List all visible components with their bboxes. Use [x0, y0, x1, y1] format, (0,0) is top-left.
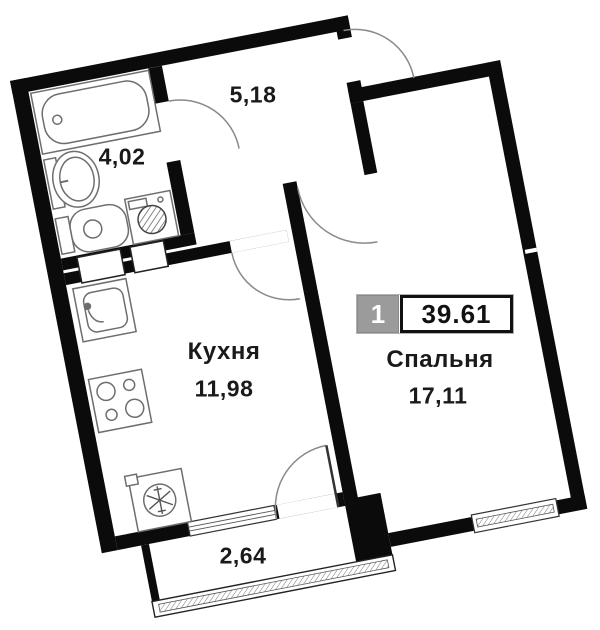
wall-bedroom-top [348, 60, 503, 103]
hallway-area-label: 5,18 [230, 82, 277, 109]
hob-icon [88, 369, 151, 432]
bedroom-window [471, 499, 559, 533]
floor-plan-page: 5,18 4,02 Кухня 11,98 Спальня 17,11 2,64… [0, 0, 600, 630]
kitchen-window [187, 505, 276, 536]
kitchen-area-label: 11,98 [195, 376, 254, 403]
washing-machine-icon [125, 191, 179, 245]
bedroom-name-label: Спальня [386, 346, 493, 374]
wall-bedroom-bottom-corner [556, 495, 587, 514]
windows [100, 248, 592, 618]
wall-partition-kitchen-bedroom [283, 181, 359, 506]
door-swings [162, 19, 492, 524]
entrance-door-arc [344, 19, 414, 89]
bathroom-area-label: 4,02 [99, 144, 146, 171]
wall-entrance-cap-top [334, 15, 352, 39]
bedroom-door-arc [298, 175, 378, 255]
wall-bedroom-door-stub [351, 101, 378, 175]
bathroom-door-arc [169, 90, 239, 160]
duct-shaft-2 [130, 241, 168, 273]
wall-bedroom-right [486, 60, 587, 511]
balcony-doorway [277, 493, 339, 518]
wall-partition-bottom-block [344, 493, 392, 562]
balcony-glazing [152, 555, 396, 617]
balcony-area-label: 2,64 [220, 543, 267, 570]
unit-number-badge: 1 [357, 295, 399, 333]
wash-basin-icon [43, 147, 104, 212]
kitchen-door-arc [232, 242, 300, 310]
kitchen-doorway [230, 230, 289, 253]
fridge-icon [125, 466, 192, 533]
unit-area-badge: 1 39.61 [356, 294, 514, 334]
wall-top [10, 15, 350, 94]
total-area-badge: 39.61 [400, 295, 513, 333]
kitchen-sink-icon [73, 279, 136, 342]
kitchen-name-label: Кухня [188, 338, 261, 366]
bedroom-area-label: 17,11 [409, 383, 468, 410]
